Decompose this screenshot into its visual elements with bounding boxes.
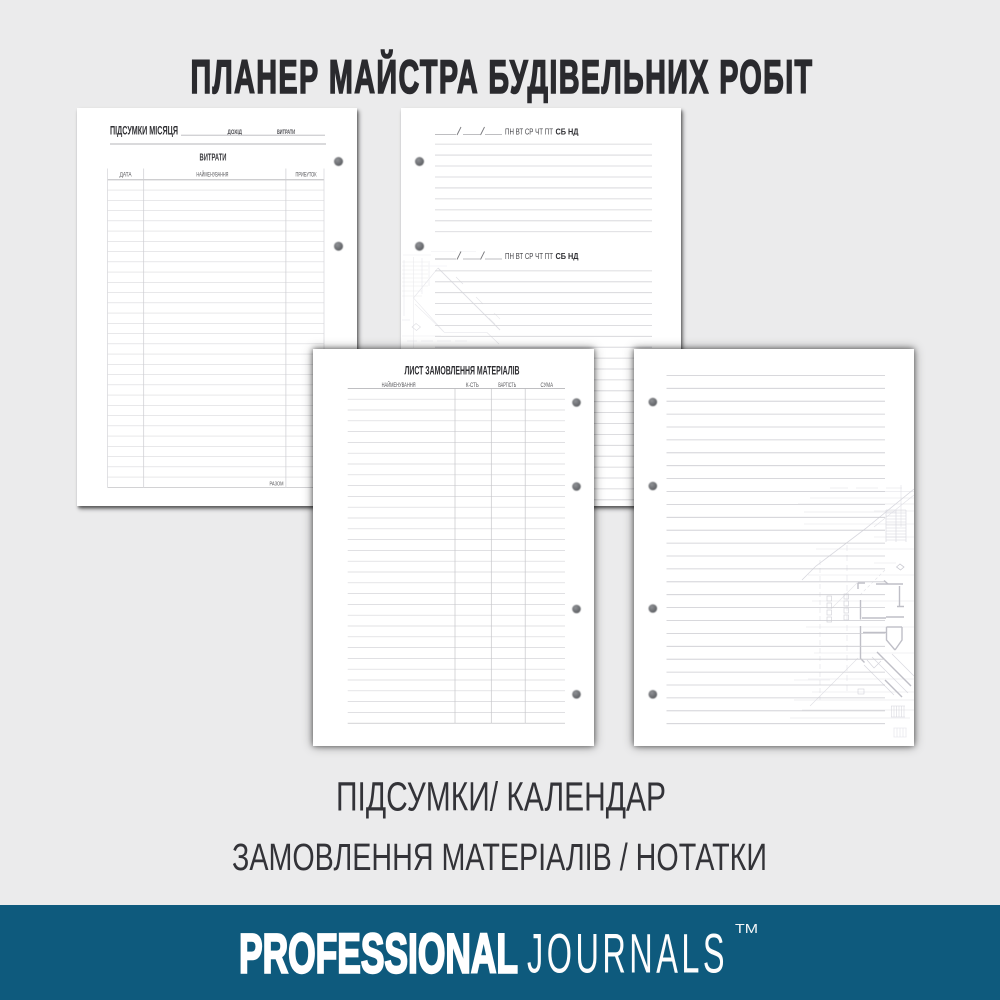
svg-text:ПРИБУТОК: ПРИБУТОК: [296, 173, 317, 179]
svg-text:ПІДСУМКИ МІСЯЦЯ: ПІДСУМКИ МІСЯЦЯ: [110, 126, 178, 138]
svg-text:TM: TM: [735, 922, 758, 936]
svg-text:PROFESSIONAL: PROFESSIONAL: [239, 922, 518, 985]
svg-text:НАЙМЕНУВАННЯ: НАЙМЕНУВАННЯ: [196, 171, 228, 179]
svg-text:ЛИСТ ЗАМОВЛЕННЯ МАТЕРІАЛІВ: ЛИСТ ЗАМОВЛЕННЯ МАТЕРІАЛІВ: [405, 363, 520, 377]
svg-text:ПІДСУМКИ/ КАЛЕНДАР: ПІДСУМКИ/ КАЛЕНДАР: [336, 774, 666, 820]
svg-text:ПН ВТ СР ЧТ ПТ: ПН ВТ СР ЧТ ПТ: [505, 128, 553, 137]
svg-text:ЗАМОВЛЕННЯ МАТЕРІАЛІВ / НОТАТК: ЗАМОВЛЕННЯ МАТЕРІАЛІВ / НОТАТКИ: [232, 837, 767, 879]
svg-text:JOURNALS: JOURNALS: [527, 922, 728, 985]
svg-text:ДАТА: ДАТА: [120, 173, 132, 179]
svg-text:ПЛАНЕР МАЙСТРА БУДІВЕЛЬНИХ РОБ: ПЛАНЕР МАЙСТРА БУДІВЕЛЬНИХ РОБІТ: [191, 50, 814, 103]
svg-text:РАЗОМ: РАЗОМ: [270, 482, 284, 488]
svg-text:СБ НД: СБ НД: [556, 128, 579, 137]
svg-text:ВИТРАТИ: ВИТРАТИ: [200, 152, 227, 164]
svg-text:НАЙМЕНУВАННЯ: НАЙМЕНУВАННЯ: [382, 381, 416, 389]
svg-text:ПН ВТ СР ЧТ ПТ: ПН ВТ СР ЧТ ПТ: [505, 252, 553, 261]
svg-text:СБ НД: СБ НД: [556, 252, 579, 261]
